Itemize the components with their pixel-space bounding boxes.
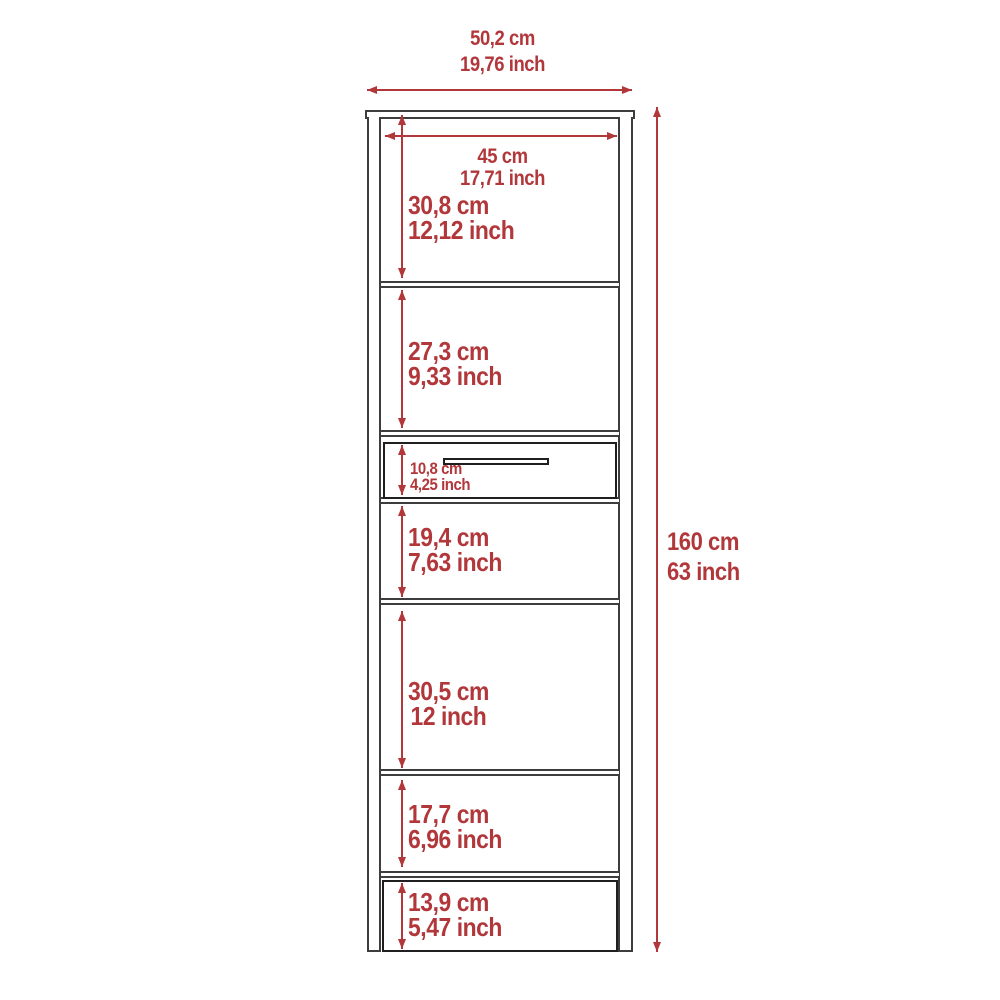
cabinet-shelf-5 — [381, 769, 619, 776]
section-label-1: 30,8 cm 12,12 inch — [408, 193, 514, 243]
cabinet-shelf-2 — [381, 430, 619, 437]
drawer-height-label: 10,8 cm 4,25 inch — [410, 461, 470, 493]
dimension-diagram: 50,2 cm 19,76 inch 45 cm 17,71 inch 160 … — [0, 0, 1000, 1000]
section-arrow-5 — [401, 611, 403, 768]
cabinet-left-side-panel — [367, 117, 381, 952]
section-label-6: 17,7 cm 6,96 inch — [408, 802, 502, 852]
overall-height-arrow — [656, 107, 658, 952]
cabinet-shelf-4 — [381, 598, 619, 605]
section-arrow-6 — [401, 780, 403, 867]
cabinet-shelf-6 — [381, 871, 619, 878]
section-arrow-7 — [401, 883, 403, 949]
overall-height-label: 160 cm 63 inch — [667, 527, 740, 587]
overall-width-arrow — [367, 89, 632, 91]
overall-height-cm: 160 cm — [667, 527, 740, 557]
inner-width-cm: 45 cm — [404, 146, 602, 168]
cabinet-shelf-1 — [381, 281, 619, 288]
inner-width-inch: 17,71 inch — [404, 168, 602, 190]
overall-width-inch: 19,76 inch — [404, 52, 602, 78]
overall-height-inch: 63 inch — [667, 557, 740, 587]
section-label-5: 30,5 cm 12 inch — [408, 679, 489, 729]
section-7-inch: 5,47 inch — [408, 915, 502, 940]
drawer-height-inch: 4,25 inch — [410, 477, 470, 493]
section-label-2: 27,3 cm 9,33 inch — [408, 339, 502, 389]
inner-width-label: 45 cm 17,71 inch — [404, 146, 602, 190]
section-arrow-2 — [401, 290, 403, 428]
section-1-inch: 12,12 inch — [408, 218, 514, 243]
cabinet-right-side-panel — [618, 117, 633, 952]
section-2-inch: 9,33 inch — [408, 364, 502, 389]
overall-width-label: 50,2 cm 19,76 inch — [404, 26, 602, 78]
section-5-inch: 12 inch — [408, 704, 489, 729]
drawer-height-arrow — [401, 445, 403, 495]
section-arrow-1 — [401, 115, 403, 278]
section-6-inch: 6,96 inch — [408, 827, 502, 852]
section-label-4: 19,4 cm 7,63 inch — [408, 525, 502, 575]
overall-width-cm: 50,2 cm — [404, 26, 602, 52]
section-4-inch: 7,63 inch — [408, 550, 502, 575]
section-arrow-4 — [401, 506, 403, 597]
section-label-7: 13,9 cm 5,47 inch — [408, 890, 502, 940]
inner-width-arrow — [385, 135, 617, 137]
